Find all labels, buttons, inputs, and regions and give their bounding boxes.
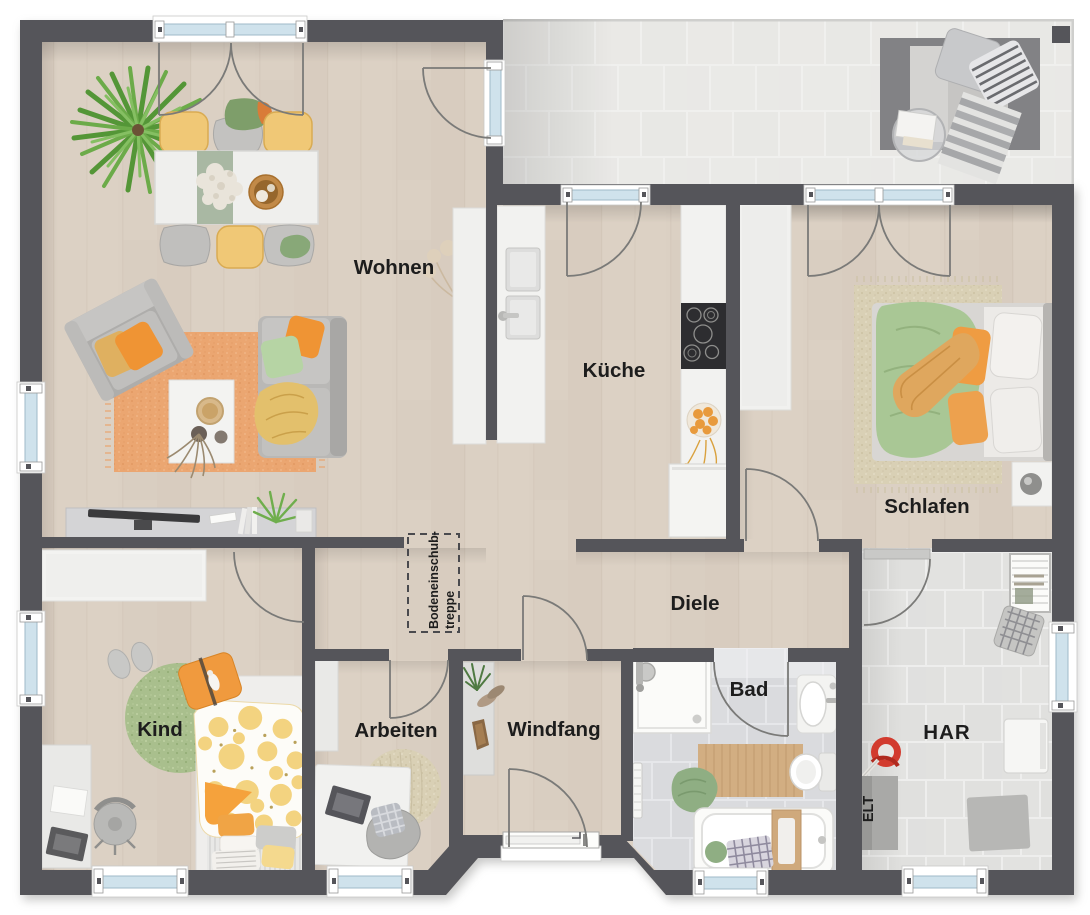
- svg-text:Kind: Kind: [137, 718, 183, 741]
- svg-text:HAR: HAR: [923, 721, 970, 744]
- svg-text:Wohnen: Wohnen: [354, 256, 434, 279]
- svg-text:ELT: ELT: [861, 796, 877, 822]
- svg-text:Bodeneinschub-: Bodeneinschub-: [427, 531, 441, 629]
- svg-text:Arbeiten: Arbeiten: [354, 719, 437, 742]
- svg-text:Bad: Bad: [730, 678, 769, 701]
- svg-text:Küche: Küche: [583, 359, 646, 382]
- svg-text:Diele: Diele: [671, 592, 720, 615]
- svg-text:Schlafen: Schlafen: [884, 495, 969, 518]
- svg-text:treppe: treppe: [443, 591, 457, 629]
- svg-text:Windfang: Windfang: [507, 718, 600, 741]
